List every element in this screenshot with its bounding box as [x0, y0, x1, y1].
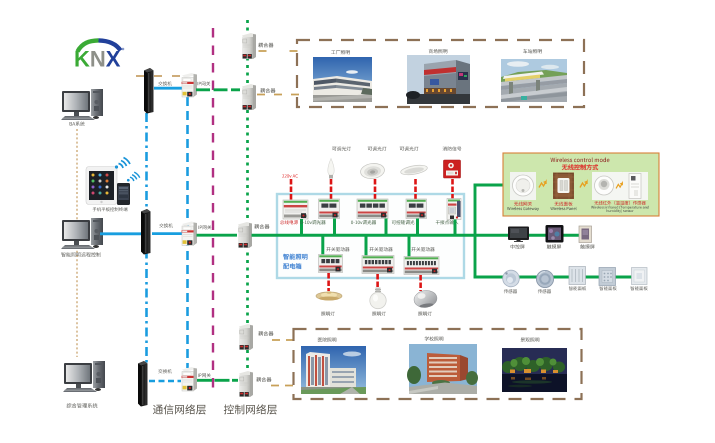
svg-text:KNX: KNX [74, 47, 121, 72]
